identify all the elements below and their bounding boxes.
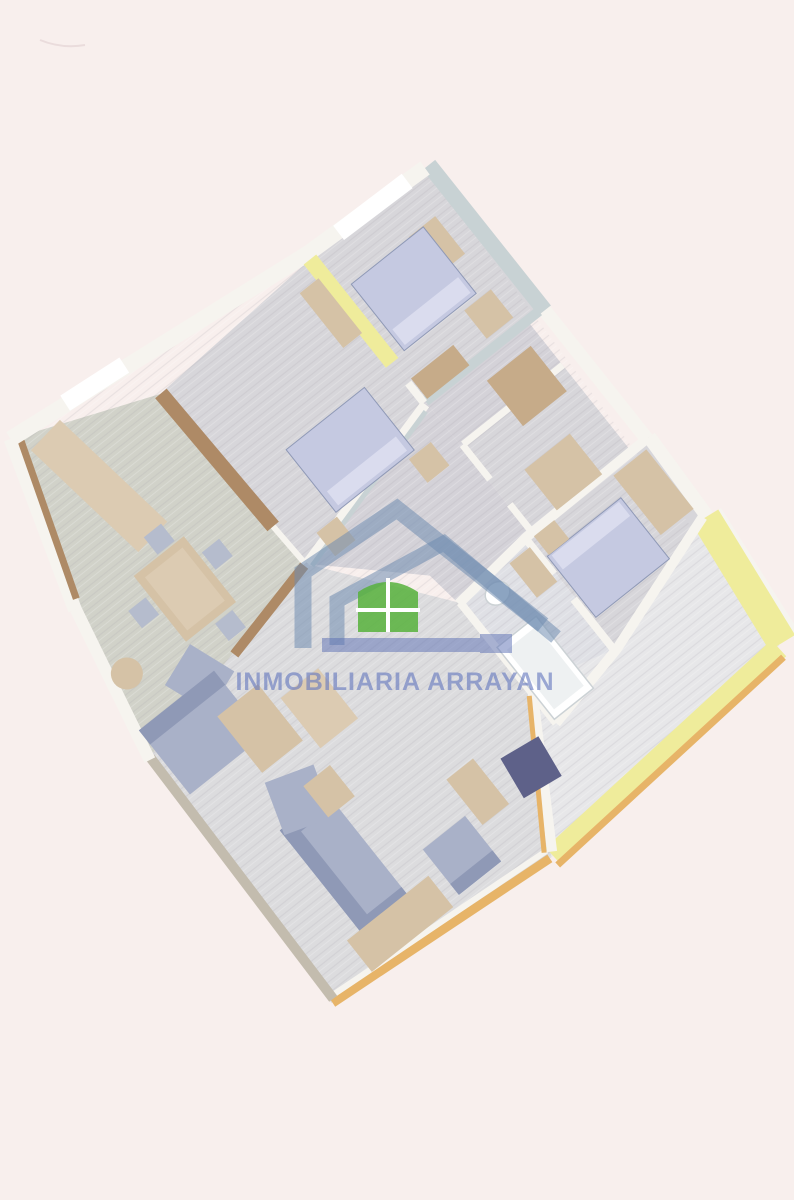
floorplan-render: INMOBILIARIA ARRAYAN (0, 0, 794, 1200)
background-scratch-mark (40, 40, 85, 46)
logo-underline-bar (322, 638, 480, 652)
logo-underline-step (480, 634, 512, 653)
watermark-text: INMOBILIARIA ARRAYAN (235, 668, 554, 696)
floorplan-canvas: INMOBILIARIA ARRAYAN (0, 0, 794, 1200)
